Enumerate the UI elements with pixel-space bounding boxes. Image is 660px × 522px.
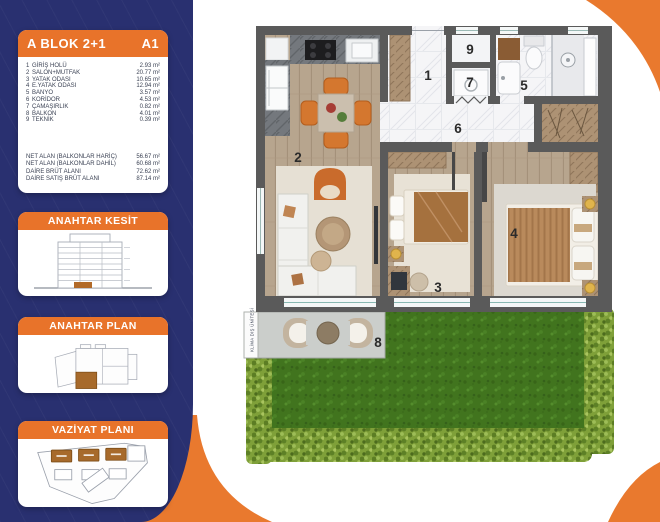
key-section-header: ANAHTAR KESİT: [18, 212, 168, 230]
room-label-1: 1: [424, 68, 432, 83]
unit-code: A1: [142, 36, 159, 51]
page: 1 2 3 4 5 6 7 8 9 KLİMA DIŞ ÜNİTESİ A BL…: [0, 0, 660, 522]
shower-panel: [584, 38, 596, 96]
room-name: ÇAMAŞIRLIK: [32, 104, 140, 111]
room-label-4: 4: [510, 226, 518, 241]
total-row: NET ALAN (BALKONLAR DAHİL)60.68 m²: [26, 161, 160, 169]
room-area: 3.57 m²: [140, 90, 160, 97]
bedroom3-wardrobe: [388, 152, 446, 168]
laptop: [391, 272, 407, 290]
room-area: 2.93 m²: [140, 63, 160, 70]
toilet-tank: [524, 36, 544, 46]
room-list: 1GİRİŞ HOLÜ2.93 m² 2SALON+MUTFAK20.77 m²…: [18, 57, 168, 193]
room-list-item: 1GİRİŞ HOLÜ2.93 m²: [26, 63, 160, 70]
garden-hedge-bottom: [252, 428, 592, 462]
ac-unit-label: KLİMA DIŞ ÜNİTESİ: [250, 308, 255, 352]
total-row: DAİRE SATIŞ BRÜT ALANI87.14 m²: [26, 176, 160, 184]
bedroom4-bed: [506, 204, 598, 286]
balcony-chair-left: [283, 318, 314, 348]
room-name: E.YATAK ODASI: [32, 83, 136, 90]
decor-bottom-right: [608, 462, 660, 522]
desk-chair: [410, 273, 428, 291]
unit-info-card: A BLOK 2+1 A1 1GİRİŞ HOLÜ2.93 m² 2SALON+…: [18, 30, 168, 193]
room-area: 20.77 m²: [136, 70, 160, 77]
bedroom4-lamp-top: [585, 199, 595, 209]
highlighted-unit: [76, 372, 97, 388]
room-list-item: 5BANYO3.57 m²: [26, 90, 160, 97]
room-name: SALON+MUTFAK: [32, 70, 136, 77]
room-label-6: 6: [454, 121, 462, 136]
key-section-diagram: [18, 230, 168, 296]
room-name: KORİDOR: [32, 97, 140, 104]
room-name: YATAK ODASI: [32, 77, 136, 84]
balcony: [244, 312, 385, 358]
total-value: 60.68 m²: [136, 161, 160, 169]
room-label-7: 7: [466, 75, 474, 90]
balcony-chair-right: [342, 318, 373, 348]
garden-hedge-left: [246, 352, 272, 464]
key-plan-header: ANAHTAR PLAN: [18, 317, 168, 335]
door-leaf-bedroom3: [452, 152, 455, 190]
key-section-card: ANAHTAR KESİT: [18, 212, 168, 296]
side-table: [311, 251, 331, 271]
room-area: 4.01 m²: [140, 111, 160, 118]
dining-table: [318, 94, 354, 132]
room-list-item: 9TEKNİK0.39 m²: [26, 117, 160, 124]
room-list-item: 2SALON+MUTFAK20.77 m²: [26, 70, 160, 77]
room-name: GİRİŞ HOLÜ: [32, 63, 140, 70]
cooktop: [305, 40, 336, 60]
room-area: 10.65 m²: [136, 77, 160, 84]
total-value: 72.62 m²: [136, 169, 160, 177]
room-name: BANYO: [32, 90, 140, 97]
hall-wardrobe: [390, 35, 410, 101]
balcony-table: [317, 322, 339, 344]
room-list-item: 7ÇAMAŞIRLIK0.82 m²: [26, 104, 160, 111]
closet: [542, 104, 598, 142]
total-label: NET ALAN (BALKONLAR DAHİL): [26, 161, 136, 169]
room-list-item: 4E.YATAK ODASI12.94 m²: [26, 83, 160, 90]
total-value: 87.14 m²: [136, 176, 160, 184]
key-plan-diagram: [18, 335, 168, 393]
key-plan-card: ANAHTAR PLAN: [18, 317, 168, 393]
site-plan-header: VAZİYAT PLANI: [18, 421, 168, 439]
bedroom3-lamp: [391, 249, 401, 259]
bedroom4-lamp-bottom: [585, 283, 595, 293]
site-plan-card: VAZİYAT PLANI: [18, 421, 168, 507]
sidebar: A BLOK 2+1 A1 1GİRİŞ HOLÜ2.93 m² 2SALON+…: [0, 0, 193, 522]
room-list-item: 3YATAK ODASI10.65 m²: [26, 77, 160, 84]
total-label: DAİRE SATIŞ BRÜT ALANI: [26, 176, 136, 184]
room-name: TEKNİK: [32, 117, 140, 124]
door-leaf-bedroom4: [482, 152, 487, 202]
room-label-3: 3: [434, 280, 442, 295]
room-label-9: 9: [466, 42, 474, 57]
toilet: [526, 47, 542, 69]
room-label-5: 5: [520, 78, 528, 93]
unit-card-header: A BLOK 2+1 A1: [18, 30, 168, 57]
room-label-8: 8: [374, 335, 382, 350]
site-plan-diagram: [18, 439, 168, 507]
area-totals: NET ALAN (BALKONLAR HARİÇ)56.67 m² NET A…: [26, 154, 160, 184]
room-area: 4.53 m²: [140, 97, 160, 104]
room-area: 0.39 m²: [140, 117, 160, 124]
total-value: 56.67 m²: [136, 154, 160, 162]
bath-cabinet: [498, 38, 520, 60]
room-list-item: 6KORİDOR4.53 m²: [26, 97, 160, 104]
room-area: 0.82 m²: [140, 104, 160, 111]
highlighted-floor: [74, 282, 92, 288]
room-label-2: 2: [294, 150, 302, 165]
kitchen-cabinet: [266, 38, 288, 60]
room-area: 12.94 m²: [136, 83, 160, 90]
tv: [374, 206, 378, 264]
block-title: A BLOK 2+1: [27, 36, 106, 51]
